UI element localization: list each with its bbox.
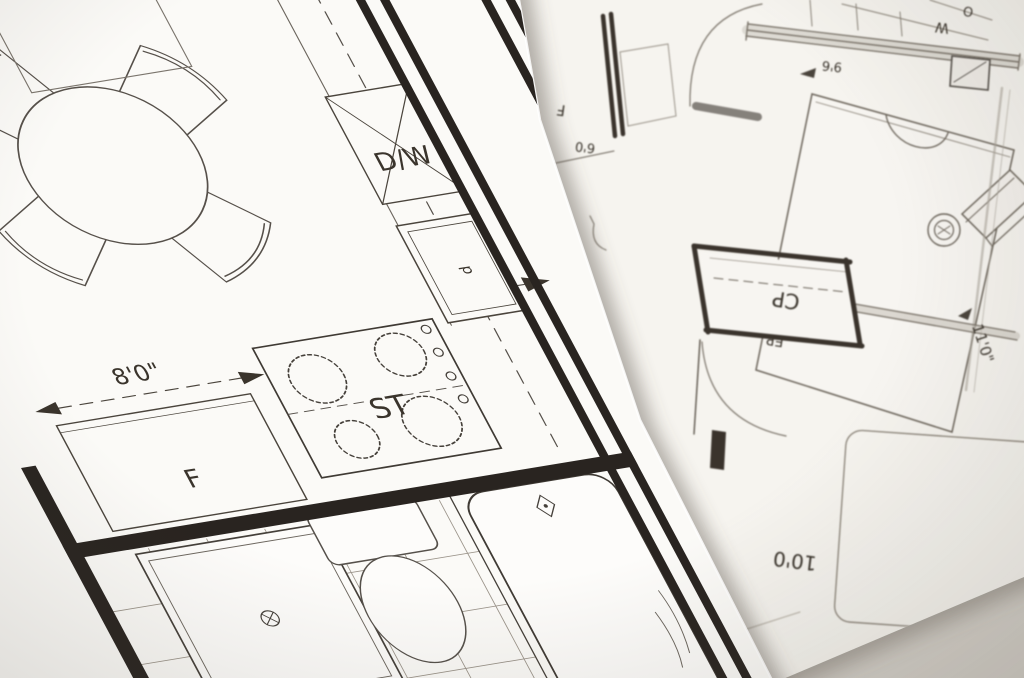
closet-ep-label: EP (765, 331, 785, 350)
closet-cp: CP (694, 246, 862, 346)
wall-stub (710, 430, 726, 470)
ceiling-fixture-icon (928, 214, 960, 246)
letter-w-label: W (934, 18, 950, 36)
appliance-box (950, 56, 990, 90)
closet-cp-label: CP (771, 286, 802, 314)
dim-6ft-label: 6'0 (574, 138, 596, 155)
dim-9ft6-label: 9'6 (821, 57, 843, 74)
letter-o-label: O (962, 2, 974, 18)
blueprint-photo: W O 9'6 (0, 0, 1024, 678)
blueprint-canvas: W O 9'6 (0, 0, 1024, 678)
